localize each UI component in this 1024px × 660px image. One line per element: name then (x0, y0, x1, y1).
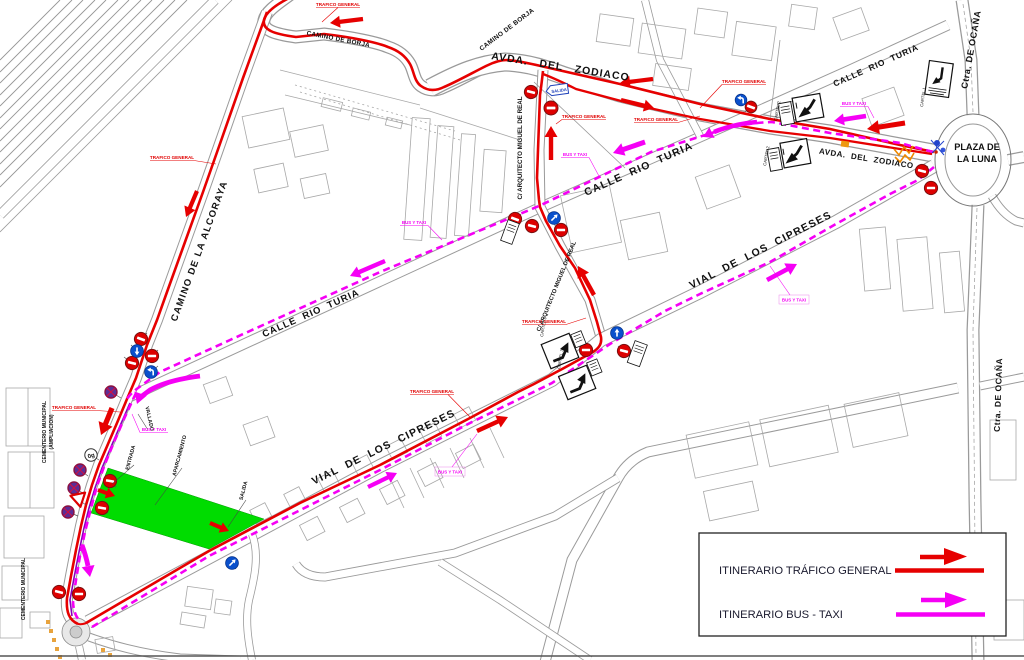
svg-text:TRAFICO GENERAL: TRAFICO GENERAL (722, 79, 766, 84)
svg-text:CEMENTERIO MUNICIPAL: CEMENTERIO MUNICIPAL (21, 558, 27, 620)
svg-text:CEMENTERIO MUNICIPAL: CEMENTERIO MUNICIPAL (42, 401, 48, 463)
svg-text:TRAFICO GENERAL: TRAFICO GENERAL (410, 389, 454, 394)
svg-text:TRAFICO GENERAL: TRAFICO GENERAL (634, 117, 678, 122)
svg-text:BUS Y TAXI: BUS Y TAXI (438, 470, 462, 475)
svg-text:BUS Y TAXI: BUS Y TAXI (782, 298, 806, 303)
svg-text:PLAZA DE: PLAZA DE (954, 142, 1000, 152)
svg-text:ITINERARIO TRÁFICO GENERAL: ITINERARIO TRÁFICO GENERAL (719, 564, 892, 577)
svg-text:(AMPLIACION): (AMPLIACION) (49, 414, 55, 449)
svg-text:ITINERARIO BUS - TAXI: ITINERARIO BUS - TAXI (719, 609, 843, 621)
svg-text:BUS Y TAXI: BUS Y TAXI (842, 101, 866, 106)
svg-text:TRAFICO GENERAL: TRAFICO GENERAL (150, 155, 194, 160)
svg-text:C/ ARQUITECTO MIGUEL DE REAL: C/ ARQUITECTO MIGUEL DE REAL (517, 96, 524, 199)
svg-text:TRAFICO GENERAL: TRAFICO GENERAL (316, 2, 360, 7)
svg-text:TRAFICO GENERAL: TRAFICO GENERAL (52, 405, 96, 410)
svg-text:BUS Y TAXI: BUS Y TAXI (402, 220, 426, 225)
svg-text:BUS Y TAXI: BUS Y TAXI (142, 427, 166, 432)
svg-text:BUS Y TAXI: BUS Y TAXI (563, 152, 587, 157)
svg-text:TRAFICO GENERAL: TRAFICO GENERAL (562, 114, 606, 119)
svg-text:LA LUNA: LA LUNA (957, 154, 997, 164)
svg-text:TRAFICO GENERAL: TRAFICO GENERAL (522, 319, 566, 324)
